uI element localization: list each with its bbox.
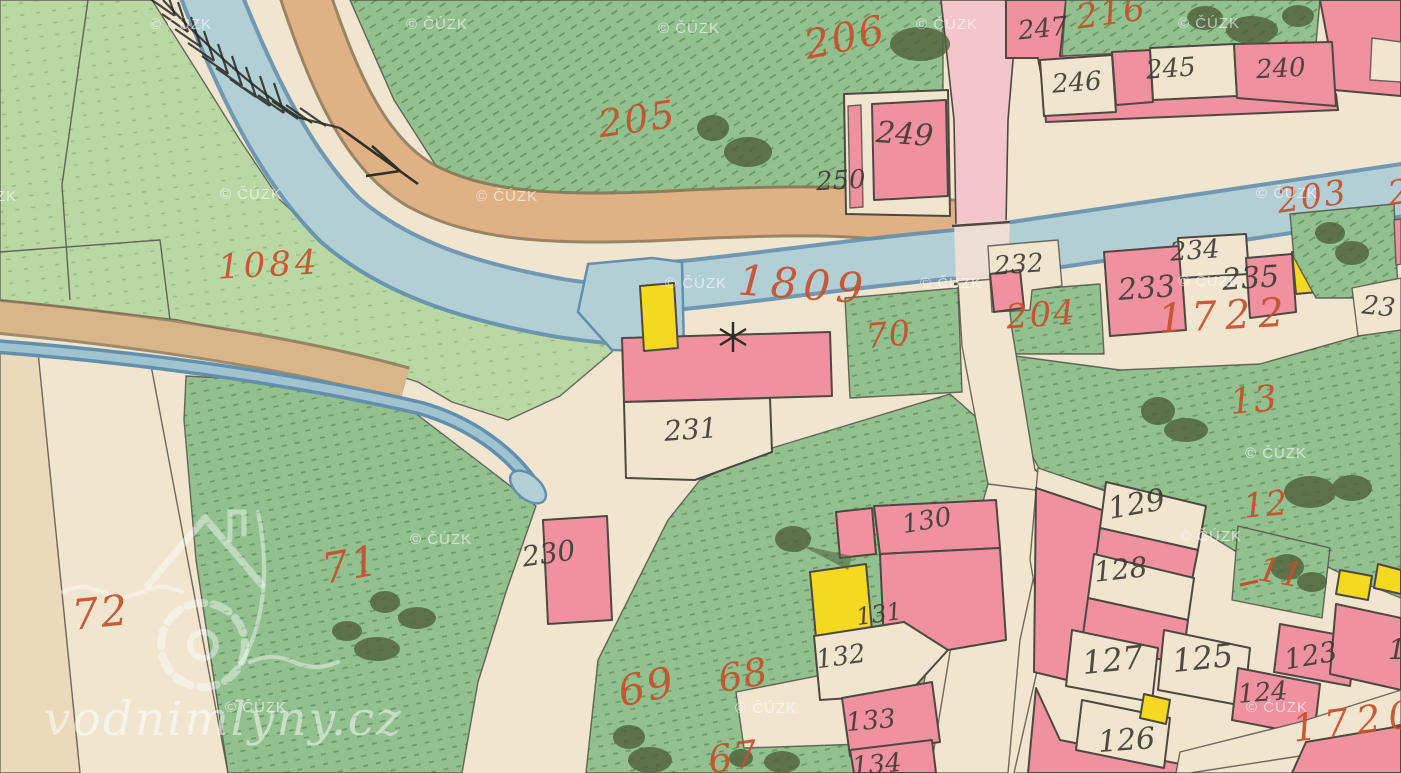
source-watermark: © ČÚZK [476, 188, 538, 205]
parcel-number: 70 [864, 316, 913, 355]
house-number: 128 [1093, 553, 1149, 586]
source-watermark: © ČÚZK [1245, 445, 1307, 462]
source-watermark: © ČÚZK [916, 16, 978, 33]
wooden-building [1336, 570, 1372, 600]
building-249-block [844, 90, 950, 216]
mill-wooden-building [640, 283, 678, 351]
source-watermark: © ČÚZK [0, 188, 17, 205]
house-number: 126 [1097, 724, 1156, 758]
house-number: 247 [1017, 13, 1069, 44]
source-watermark: © ČÚZK [658, 20, 720, 37]
house-number: 125 [1170, 639, 1234, 677]
parcel-number: 11 [1255, 552, 1305, 593]
parcel-number: 13 [1229, 381, 1280, 421]
parcel-number: 1084 [217, 245, 321, 284]
house-number: 249 [875, 118, 934, 152]
parcel-number: 12 [1242, 486, 1290, 524]
parcel-number: 67 [706, 735, 761, 773]
brand-watermark: vodnimlyny.cz [44, 692, 403, 747]
source-watermark: © ČÚZK [920, 275, 982, 292]
house-number: 231 [663, 414, 718, 446]
house-number: 23 [1361, 292, 1397, 321]
house-number: 234 [1169, 236, 1220, 265]
house-number: 233 [1117, 272, 1176, 306]
house-number: 245 [1145, 54, 1196, 83]
parcel-number: 72 [70, 589, 132, 637]
wooden-building [1140, 694, 1170, 724]
house-number: 250 [815, 167, 866, 196]
parcel-number: 68 [715, 652, 771, 698]
house-number: 134 [851, 750, 903, 773]
source-watermark: © ČÚZK [406, 16, 468, 33]
house-number: 246 [1051, 68, 1102, 97]
house-number: 1 [1388, 636, 1401, 664]
parcel-number: 204 [1005, 296, 1078, 335]
cadastral-map: 1084205206216203218097020417221312111720… [0, 0, 1401, 773]
house-number: 132 [814, 641, 867, 674]
house-number: 127 [1080, 641, 1144, 679]
source-watermark: © ČÚZK [220, 186, 282, 203]
parcel-number: 1722 [1157, 293, 1293, 340]
building-230 [543, 516, 612, 624]
source-watermark: © ČÚZK [150, 16, 212, 33]
source-watermark: © ČÚZK [1180, 528, 1242, 545]
source-watermark: © ČÚZK [1246, 699, 1308, 716]
source-watermark: © ČÚZK [410, 531, 472, 548]
source-watermark: © ČÚZK [1178, 15, 1240, 32]
parcel-number: 205 [596, 95, 679, 144]
source-watermark: © ČÚZK [1178, 273, 1240, 290]
parcel-number: 1809 [737, 259, 871, 310]
house-number: 133 [845, 706, 897, 736]
parcel-number: 71 [319, 539, 383, 590]
house-number: 240 [1255, 55, 1306, 84]
source-watermark: © ČÚZK [665, 275, 727, 292]
parcel-number: 69 [614, 660, 679, 713]
house-number: 131 [855, 599, 904, 629]
house-number: 232 [993, 250, 1044, 279]
house-number: 230 [520, 536, 577, 571]
wooden-building [1374, 564, 1401, 594]
source-watermark: © ČÚZK [1256, 185, 1318, 202]
source-watermark: © ČÚZK [735, 700, 797, 717]
